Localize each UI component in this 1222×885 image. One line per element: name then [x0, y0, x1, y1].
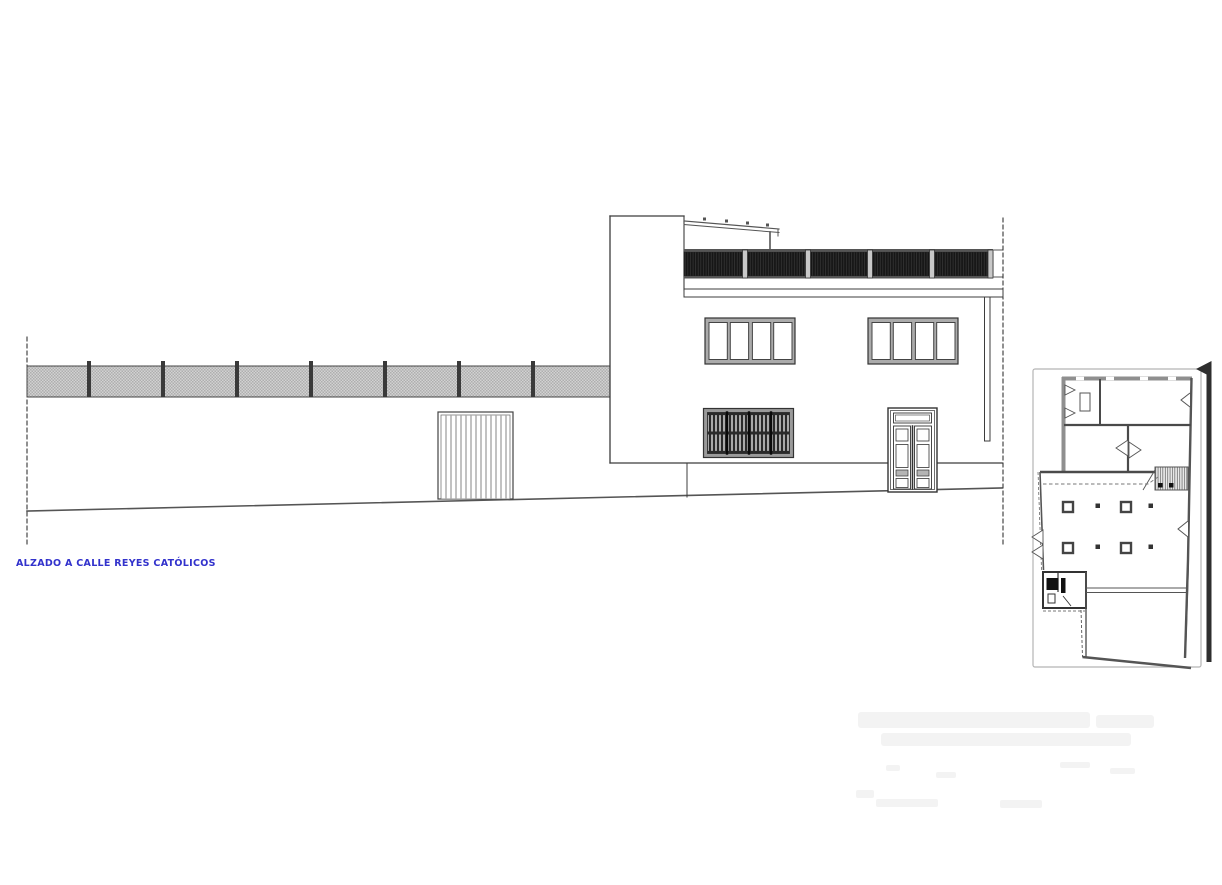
roof-railing — [684, 249, 1002, 279]
plan-furniture — [1080, 393, 1090, 411]
fence-post — [309, 361, 313, 397]
fence-post — [457, 361, 461, 397]
elevation-drawing — [27, 216, 1003, 545]
downpipe — [985, 297, 991, 441]
railing-post — [743, 250, 748, 278]
pergola-canopy — [684, 218, 779, 251]
floor-plan-inset — [1032, 361, 1212, 668]
plan-frame — [1033, 369, 1201, 667]
fence-post — [531, 361, 535, 397]
courtyard-gate — [438, 412, 513, 499]
ground-line — [27, 488, 1002, 511]
window-upper-right — [868, 318, 958, 364]
faint-watermark — [856, 712, 1154, 808]
railing-post — [988, 250, 993, 278]
railing-post — [806, 250, 811, 278]
railing-post — [930, 250, 935, 278]
fence-post — [87, 361, 91, 397]
architectural-drawing — [0, 0, 1222, 885]
elevation-title: ALZADO A CALLE REYES CATÓLICOS — [16, 558, 216, 569]
window-upper-left — [705, 318, 795, 364]
fence-mesh-band — [27, 366, 610, 397]
fence-post — [383, 361, 387, 397]
barred-window — [704, 409, 794, 458]
drawing-sheet: ALZADO A CALLE REYES CATÓLICOS — [0, 0, 1222, 885]
fence-post — [235, 361, 239, 397]
ledge-band — [684, 289, 1003, 297]
fence-post — [161, 361, 165, 397]
railing-post — [868, 250, 873, 278]
entrance-door — [888, 408, 937, 492]
